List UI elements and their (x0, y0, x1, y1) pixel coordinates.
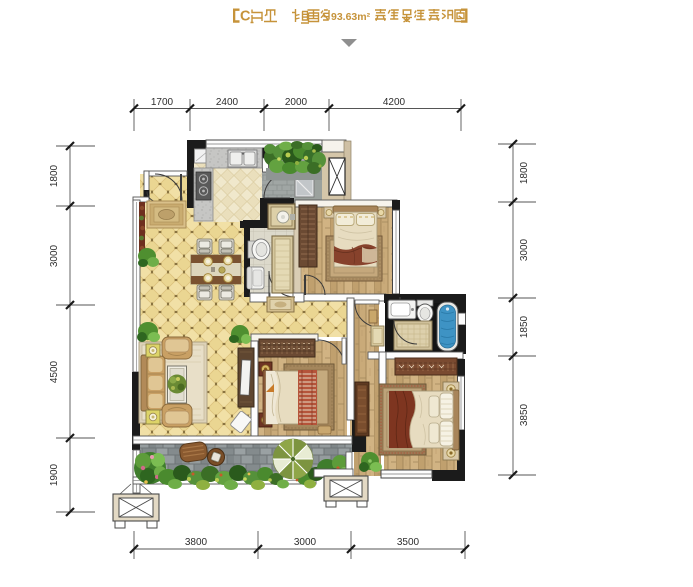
svg-text:2400: 2400 (216, 97, 239, 108)
svg-text:1850: 1850 (519, 315, 530, 338)
svg-text:3000: 3000 (519, 238, 530, 261)
svg-text:3850: 3850 (519, 403, 530, 426)
svg-text:1800: 1800 (519, 161, 530, 184)
svg-text:C: C (240, 9, 251, 25)
svg-text:4200: 4200 (383, 97, 406, 108)
svg-text:1900: 1900 (49, 463, 60, 486)
svg-text:2000: 2000 (285, 97, 308, 108)
svg-text:3000: 3000 (49, 244, 60, 267)
svg-text:1700: 1700 (151, 97, 174, 108)
svg-text:3800: 3800 (185, 537, 208, 548)
svg-text:3500: 3500 (397, 537, 420, 548)
svg-text:1800: 1800 (49, 164, 60, 187)
svg-text:4500: 4500 (49, 360, 60, 383)
svg-text:93.63m²: 93.63m² (331, 11, 371, 23)
svg-text:3000: 3000 (294, 537, 317, 548)
